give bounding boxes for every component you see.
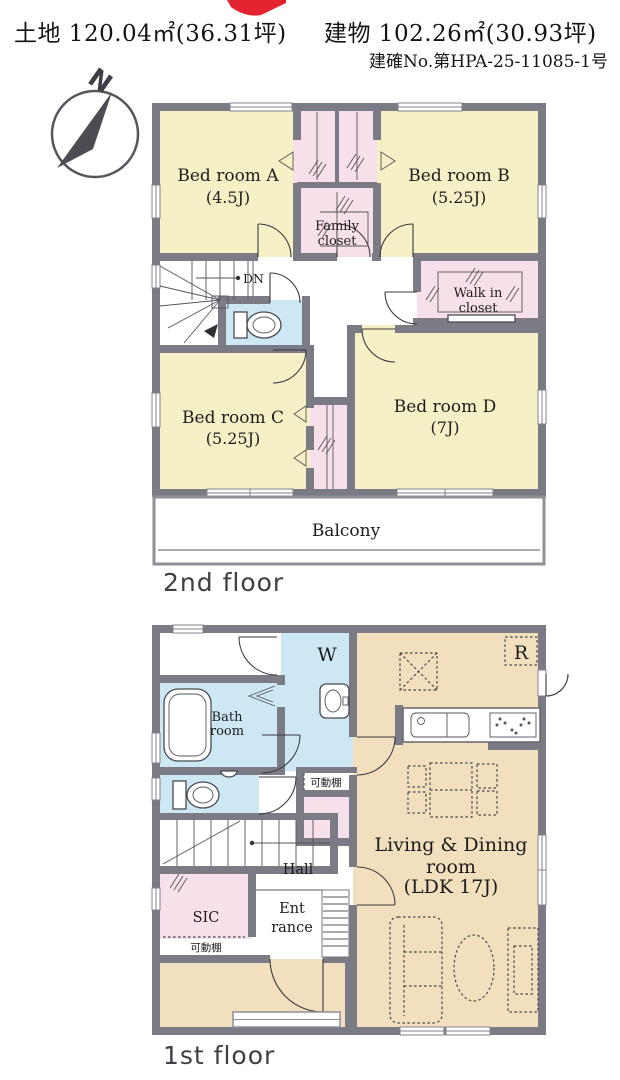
bedroom-b-label: Bed room B [408, 166, 509, 186]
floor2-toilet-icon [234, 312, 281, 338]
floor1-plan: Bath room W R Hall SIC Ent rance Living … [152, 625, 568, 1070]
entrance-label-2: rance [271, 920, 313, 936]
family-closet-label-1: Family [315, 219, 360, 234]
walk-in-closet-label-1: Walk in [454, 286, 503, 301]
bedroom-c-size: (5.25J) [206, 429, 261, 448]
walk-in-closet-label-2: closet [459, 301, 499, 316]
bedroom-a-size: (4.5J) [206, 188, 250, 207]
family-closet-label-2: closet [318, 234, 358, 249]
bathroom-label-1: Bath [212, 710, 244, 725]
movable-shelf-label-sic: 可動棚 [190, 941, 222, 954]
floor2-plan: DN [152, 103, 546, 597]
floor1-title: 1st floor [163, 1041, 275, 1070]
ldk-label-3: (LDK 17J) [404, 876, 499, 898]
bedroom-c-label: Bed room C [182, 408, 284, 428]
ldk-label-1: Living & Dining [375, 834, 528, 856]
sic-label: SIC [193, 910, 220, 926]
floor2-title: 2nd floor [163, 568, 284, 597]
floorplan-drawing: N [0, 0, 620, 1080]
washbasin-icon [320, 684, 349, 718]
red-logo-fragment [227, 0, 286, 16]
bedroom-b-size: (5.25J) [432, 188, 487, 207]
hall-label: Hall [283, 862, 314, 878]
movable-shelf-label-washroom: 可動棚 [310, 776, 342, 789]
bedroom-d-size: (7J) [430, 418, 459, 437]
washer-label: W [317, 644, 337, 666]
ldk-label-2: room [426, 856, 476, 878]
compass-rose: N [52, 63, 138, 177]
floorplan-page: 土地 120.04㎡(36.31坪) 建物 102.26㎡(30.93坪) 建確… [0, 0, 620, 1080]
bedroom-a-label: Bed room A [177, 166, 279, 186]
stairs-down-arrow-icon [204, 324, 218, 338]
bathroom-label-2: room [210, 724, 244, 739]
entrance-label-1: Ent [279, 901, 305, 917]
porch-step [233, 1012, 340, 1027]
balcony-label: Balcony [312, 521, 381, 541]
kitchen-counter [403, 708, 540, 742]
stairs-down-label: DN [243, 271, 264, 286]
floor1-toilet-icon [173, 781, 219, 809]
bedroom-d-label: Bed room D [394, 397, 497, 417]
shoe-cabinet-icon [322, 890, 349, 957]
refrigerator-label: R [514, 642, 529, 664]
